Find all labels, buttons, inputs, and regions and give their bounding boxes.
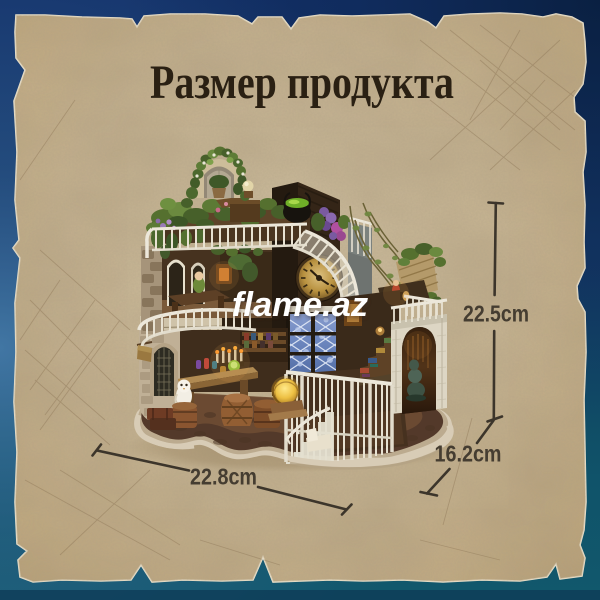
svg-text:flame.az: flame.az (232, 286, 369, 324)
svg-text:16.2cm: 16.2cm (435, 441, 502, 467)
svg-text:22.5cm: 22.5cm (463, 301, 529, 327)
svg-text:22.8cm: 22.8cm (190, 464, 257, 490)
svg-text:Размер продукта: Размер продукта (150, 56, 454, 109)
